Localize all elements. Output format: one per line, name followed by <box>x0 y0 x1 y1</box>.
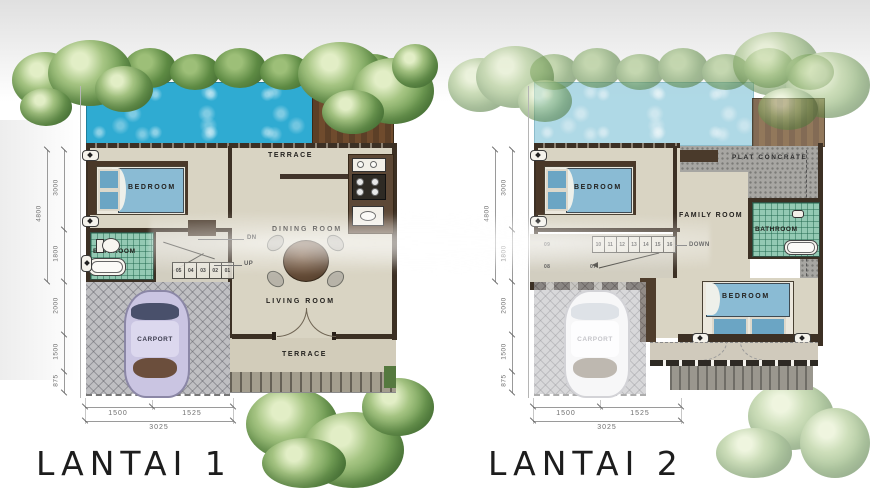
dim-1800: 1800 <box>53 237 60 271</box>
foliage-blob <box>322 90 384 134</box>
dim-4800: 4800 <box>484 197 491 231</box>
floor-plan-lantai-2: PLAT CONCRATE BATHROOM FAMILY ROOM BEDRO… <box>448 0 870 489</box>
bush <box>616 54 664 90</box>
family-room-floor <box>677 170 750 292</box>
dim-1525-h: 1525 <box>620 410 660 417</box>
carport-label: CARPORT <box>571 321 619 357</box>
concrete-apron <box>670 366 813 390</box>
bench-counter <box>280 174 350 179</box>
bedroom-bottom-label: BEDROOM <box>722 293 770 300</box>
foliage-blob <box>95 66 153 112</box>
family-room-label: FAMILY ROOM <box>679 212 743 219</box>
car-rear-window <box>573 358 617 378</box>
burner-dot <box>356 178 364 186</box>
bush <box>214 48 266 88</box>
foliage-blob <box>262 438 346 488</box>
burner-dot <box>371 178 379 186</box>
dimension-line <box>495 150 496 282</box>
bush <box>658 48 708 88</box>
dim-875: 875 <box>501 364 508 398</box>
leader-line <box>198 239 244 240</box>
dim-3025-h: 3025 <box>139 424 179 431</box>
window-vent-icon <box>82 216 99 227</box>
window-vent-icon <box>81 255 92 272</box>
dimension-line <box>533 407 681 408</box>
foliage-blob <box>800 408 870 478</box>
stair-up-label: UP <box>244 261 253 267</box>
dimension-line <box>533 421 681 422</box>
terrace-top-label: TERRACE <box>268 152 313 159</box>
tread-number: 16 <box>663 237 675 252</box>
dim-3025-h: 3025 <box>587 424 627 431</box>
wall-living-bottom-right <box>336 334 396 339</box>
dimension-line <box>85 407 233 408</box>
pillow <box>546 190 568 211</box>
lawn-patch <box>384 366 396 388</box>
terrace-bottom-label: TERRACE <box>282 351 327 358</box>
tub-basin <box>91 261 123 273</box>
floor-plan-lantai-1: BEDROOM TERRACE DINING ROOM 05 04 <box>0 0 440 489</box>
dim-875: 875 <box>53 364 60 398</box>
bedroom-label: BEDROOM <box>128 184 176 191</box>
dining-room-label: DINING ROOM <box>272 226 342 233</box>
tub-basin <box>787 242 815 253</box>
foliage-blob <box>716 428 792 478</box>
dim-2000: 2000 <box>53 289 60 323</box>
window-vent-icon <box>530 150 547 161</box>
bush <box>572 48 622 88</box>
entry-steps <box>230 372 396 392</box>
dimension-line <box>64 150 65 393</box>
foliage-blob <box>758 88 818 130</box>
dim-1800: 1800 <box>501 237 508 271</box>
window-vent-icon <box>530 216 547 227</box>
dimension-line <box>512 150 513 393</box>
leader-line <box>214 265 242 266</box>
dim-2000: 2000 <box>501 289 508 323</box>
plan-title: LANTAI 1 <box>36 444 232 483</box>
dining-table <box>283 240 329 282</box>
window-vent-icon <box>82 150 99 161</box>
dim-1500-h: 1500 <box>98 410 138 417</box>
toilet-bowl <box>102 238 120 253</box>
tread-number: 03 <box>196 263 208 278</box>
living-room-label: LIVING ROOM <box>266 298 335 305</box>
tread-number: 13 <box>628 237 640 252</box>
bathroom-label: BATHROOM <box>755 226 798 233</box>
burner-dot <box>370 161 377 168</box>
sink-basin <box>360 211 376 221</box>
car-rear-window <box>133 358 177 378</box>
bath-sink <box>792 210 804 218</box>
tread-number: 11 <box>604 237 616 252</box>
dim-1500-h: 1500 <box>546 410 586 417</box>
burner-dot <box>371 188 379 196</box>
stair-arrowhead <box>592 262 598 268</box>
wall-hall-divider <box>673 146 677 292</box>
wall-top <box>86 143 396 148</box>
tread-number: 04 <box>184 263 196 278</box>
dimension-line <box>85 421 233 422</box>
wall-top <box>534 143 680 148</box>
foliage-blob <box>392 44 438 88</box>
dim-3000: 3000 <box>501 171 508 205</box>
stair-treads: 10 11 12 13 14 15 16 <box>592 236 676 253</box>
hall-closet <box>680 150 718 162</box>
stair-mark: 08 <box>544 264 550 270</box>
stair-dn-label: DN <box>247 235 256 241</box>
tread-number: 15 <box>651 237 663 252</box>
door-post <box>272 332 276 340</box>
wall-living-bottom-left <box>232 334 274 339</box>
pillow <box>98 190 120 211</box>
foliage-blob <box>518 80 572 122</box>
plan-title: LANTAI 2 <box>488 444 684 483</box>
car-windshield <box>131 303 179 320</box>
dim-4800: 4800 <box>36 197 43 231</box>
plot-boundary-line <box>80 86 81 398</box>
car-windshield <box>571 303 619 320</box>
foliage-blob <box>20 88 72 126</box>
leader-line <box>675 245 687 246</box>
dimension-line <box>47 150 48 282</box>
bush <box>170 54 220 90</box>
burner-dot <box>357 161 364 168</box>
tread-number: 14 <box>639 237 651 252</box>
tread-number: 05 <box>173 263 184 278</box>
tread-number: 10 <box>593 237 604 252</box>
dim-1525-h: 1525 <box>172 410 212 417</box>
wall-bedroom-bottom <box>534 228 680 232</box>
carport-label: CARPORT <box>131 321 179 357</box>
plat-concrete-label: PLAT CONCRATE <box>732 154 807 161</box>
stair-closet <box>188 220 216 236</box>
tread-number: 12 <box>616 237 628 252</box>
plot-boundary-line <box>528 86 529 398</box>
dim-3000: 3000 <box>53 171 60 205</box>
stair-mark: 09 <box>544 242 550 248</box>
bedroom-top-label: BEDROOM <box>574 184 622 191</box>
floorplan-image: BEDROOM TERRACE DINING ROOM 05 04 <box>0 0 870 489</box>
stair-down-label: DOWN <box>689 242 710 248</box>
pillow <box>546 169 568 190</box>
burner-dot <box>356 188 364 196</box>
pillow <box>98 169 120 190</box>
terrace-edge-line <box>230 392 396 393</box>
wall-bedroom-divider <box>228 146 232 218</box>
